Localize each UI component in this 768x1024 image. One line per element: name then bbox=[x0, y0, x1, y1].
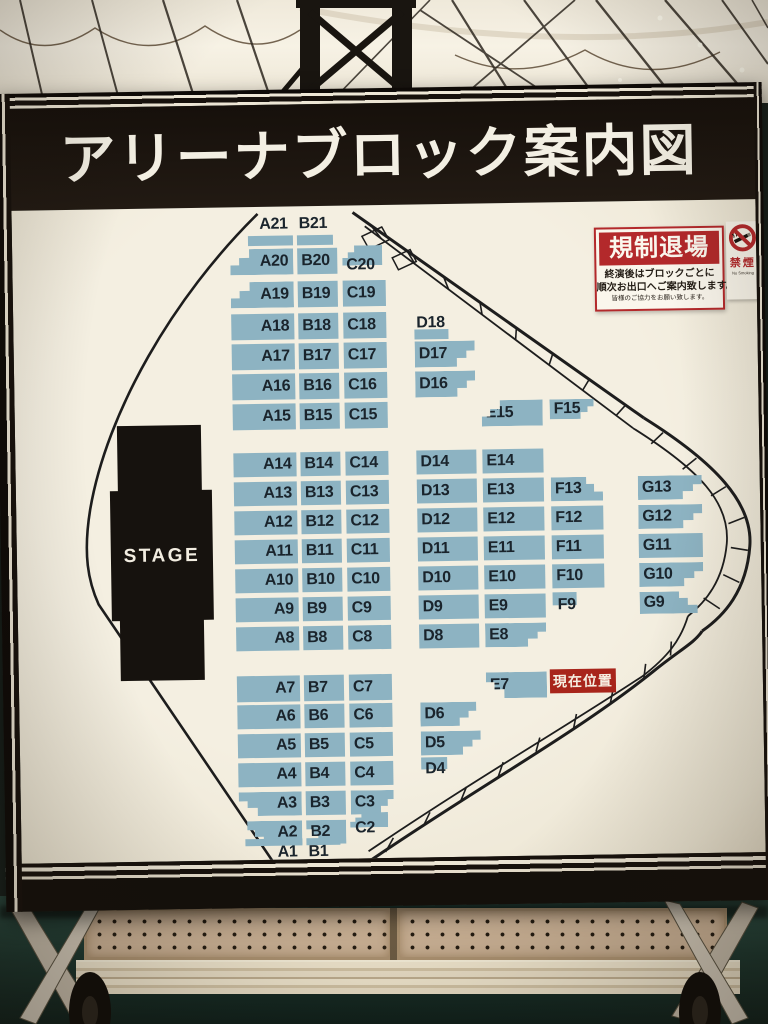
block-C15: C15 bbox=[345, 402, 388, 429]
platform-wheels bbox=[69, 972, 721, 1024]
arena-floor bbox=[0, 896, 768, 1024]
block-E15: E15 bbox=[481, 399, 542, 426]
block-D10: D10 bbox=[418, 566, 478, 591]
block-E13: E13 bbox=[483, 477, 544, 502]
block-E9: E9 bbox=[485, 593, 546, 618]
block-B8: B8 bbox=[303, 626, 343, 651]
no-smoking-label: 禁煙 bbox=[726, 257, 759, 271]
block-A13: A13 bbox=[234, 481, 297, 506]
block-F11: F11 bbox=[552, 535, 604, 560]
platform-legs bbox=[0, 896, 768, 1024]
block-A14: A14 bbox=[233, 452, 296, 477]
current-location-badge: 現在位置 bbox=[550, 668, 616, 693]
block-D13: D13 bbox=[417, 479, 477, 504]
block-D17: D17 bbox=[415, 341, 475, 368]
block-D12: D12 bbox=[417, 508, 477, 533]
block-C13: C13 bbox=[346, 480, 389, 505]
block-C17: C17 bbox=[344, 342, 387, 369]
block-D8: D8 bbox=[419, 624, 479, 649]
block-C7: C7 bbox=[349, 674, 392, 701]
block-E8: E8 bbox=[485, 622, 546, 647]
arena-map: STAGE A21B21A20B20C20A19B19C19A18B18C18D… bbox=[11, 199, 765, 864]
block-B9: B9 bbox=[303, 597, 343, 622]
sign-title: アリーナブロック案内図 bbox=[0, 97, 763, 211]
block-B7: B7 bbox=[304, 675, 344, 702]
block-D11: D11 bbox=[418, 537, 478, 562]
block-A9: A9 bbox=[236, 597, 299, 622]
block-G10: G10 bbox=[639, 562, 703, 587]
block-C6: C6 bbox=[349, 703, 392, 728]
block-A12: A12 bbox=[234, 510, 297, 535]
block-B14: B14 bbox=[300, 452, 340, 477]
block-E10: E10 bbox=[484, 564, 545, 589]
block-A4: A4 bbox=[238, 762, 301, 787]
block-B16: B16 bbox=[299, 373, 339, 400]
restricted-exit-line3: 皆様のご協力をお願い致します。 bbox=[597, 293, 723, 304]
block-D6: D6 bbox=[420, 702, 476, 727]
block-C19: C19 bbox=[343, 280, 386, 307]
block-A21-label: A21 bbox=[230, 216, 293, 233]
block-B15: B15 bbox=[300, 403, 340, 430]
block-D9: D9 bbox=[419, 595, 479, 620]
block-B20: B20 bbox=[297, 248, 337, 275]
block-D18-label: D18 bbox=[416, 315, 456, 332]
block-G13: G13 bbox=[638, 475, 702, 500]
block-D5: D5 bbox=[421, 731, 481, 756]
block-A19: A19 bbox=[231, 281, 294, 308]
no-smoking-icon bbox=[728, 223, 757, 252]
block-A3: A3 bbox=[239, 791, 302, 816]
block-F9-label: F9 bbox=[558, 597, 598, 614]
block-E12: E12 bbox=[483, 506, 544, 531]
block-F13: F13 bbox=[551, 477, 603, 502]
block-B3: B3 bbox=[306, 791, 346, 816]
block-G12: G12 bbox=[638, 504, 702, 529]
block-E11: E11 bbox=[484, 535, 545, 560]
no-smoking-sign: 禁煙 No Smoking bbox=[726, 221, 760, 300]
block-A10: A10 bbox=[235, 568, 298, 593]
block-B4: B4 bbox=[305, 762, 345, 787]
block-D14: D14 bbox=[416, 450, 476, 475]
block-A8: A8 bbox=[236, 626, 299, 651]
block-C11: C11 bbox=[347, 538, 390, 563]
block-B19: B19 bbox=[298, 281, 338, 308]
block-C14: C14 bbox=[345, 451, 388, 476]
block-D16: D16 bbox=[415, 371, 475, 398]
block-E14: E14 bbox=[482, 448, 543, 473]
block-C20-label: C20 bbox=[346, 257, 386, 274]
photo-scene: アリーナブロック案内図 STAGE A21B21A bbox=[0, 0, 768, 1024]
block-A16: A16 bbox=[232, 373, 295, 400]
block-B6: B6 bbox=[304, 704, 344, 729]
block-B10: B10 bbox=[302, 568, 342, 593]
block-C16: C16 bbox=[344, 372, 387, 399]
block-B11: B11 bbox=[302, 539, 342, 564]
block-C12: C12 bbox=[346, 509, 389, 534]
block-B13: B13 bbox=[301, 481, 341, 506]
block-G11: G11 bbox=[639, 533, 703, 558]
block-B17: B17 bbox=[299, 343, 339, 370]
block-C5: C5 bbox=[350, 732, 393, 757]
block-A15: A15 bbox=[233, 403, 296, 430]
block-C9: C9 bbox=[348, 596, 391, 621]
block-G9: G9 bbox=[640, 591, 698, 614]
block-A6: A6 bbox=[237, 704, 300, 729]
block-B21-label: B21 bbox=[299, 216, 339, 233]
block-A20: A20 bbox=[230, 248, 293, 275]
block-A17: A17 bbox=[232, 343, 295, 370]
block-A18: A18 bbox=[231, 313, 294, 340]
arena-sign-board: アリーナブロック案内図 STAGE A21B21A bbox=[0, 82, 768, 912]
block-F10: F10 bbox=[552, 564, 604, 589]
block-C3: C3 bbox=[351, 790, 394, 815]
block-E7: E7 bbox=[486, 671, 547, 698]
block-D4-label: D4 bbox=[425, 761, 465, 778]
block-A11: A11 bbox=[235, 539, 298, 564]
block-C10: C10 bbox=[347, 567, 390, 592]
block-F15: F15 bbox=[549, 399, 593, 420]
block-C2-label: C2 bbox=[355, 820, 395, 837]
block-B12: B12 bbox=[301, 510, 341, 535]
no-smoking-sublabel: No Smoking bbox=[726, 270, 759, 276]
block-C18: C18 bbox=[343, 312, 386, 339]
block-B21-shape bbox=[297, 235, 333, 246]
restricted-exit-sign: 規制退場 終演後はブロックごとに 順次お出口へご案内致します。 皆様のご協力をお… bbox=[594, 226, 725, 312]
sign-title-band: アリーナブロック案内図 bbox=[0, 97, 763, 211]
block-C8: C8 bbox=[348, 625, 391, 650]
block-A5: A5 bbox=[238, 733, 301, 758]
block-B18: B18 bbox=[298, 313, 338, 340]
block-F12: F12 bbox=[551, 506, 603, 531]
block-C4: C4 bbox=[350, 761, 393, 786]
block-A21-shape bbox=[248, 235, 293, 246]
block-B5: B5 bbox=[305, 733, 345, 758]
restricted-exit-heading: 規制退場 bbox=[599, 231, 720, 266]
block-A7: A7 bbox=[237, 675, 300, 702]
